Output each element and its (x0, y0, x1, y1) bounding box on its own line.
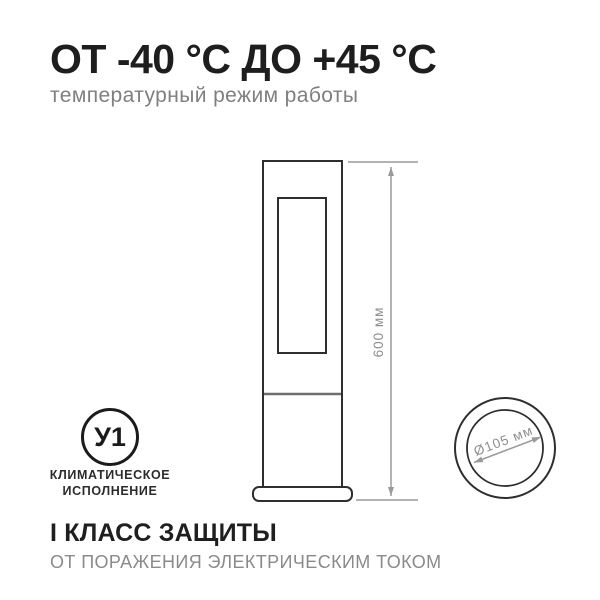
lamp-base (253, 487, 352, 501)
climate-rating-code: У1 (94, 422, 126, 453)
height-dimension-label: 600 мм (371, 307, 386, 358)
diameter-dimension-label: Ø105 мм (472, 423, 536, 459)
product-spec-infographic: ОТ -40 °C ДО +45 °C температурный режим … (0, 0, 600, 600)
height-dimension: 600 мм (348, 162, 418, 500)
protection-class-title: I КЛАСС ЗАЩИТЫ (50, 519, 442, 548)
lamp-body (263, 161, 342, 488)
fixture-dimension-drawing: 600 мм Ø105 мм (0, 0, 600, 600)
climate-rating-badge: У1 (81, 408, 139, 466)
protection-class-section: I КЛАСС ЗАЩИТЫ ОТ ПОРАЖЕНИЯ ЭЛЕКТРИЧЕСКИ… (50, 519, 442, 573)
climate-caption-line2: ИСПОЛНЕНИЕ (25, 483, 195, 499)
climate-rating-caption: КЛИМАТИЧЕСКОЕ ИСПОЛНЕНИЕ (25, 467, 195, 500)
protection-class-subtitle: ОТ ПОРАЖЕНИЯ ЭЛЕКТРИЧЕСКИМ ТОКОМ (50, 552, 442, 573)
bollard-lamp-outline (253, 161, 352, 501)
climate-caption-line1: КЛИМАТИЧЕСКОЕ (25, 467, 195, 483)
diameter-top-view: Ø105 мм (455, 398, 555, 498)
